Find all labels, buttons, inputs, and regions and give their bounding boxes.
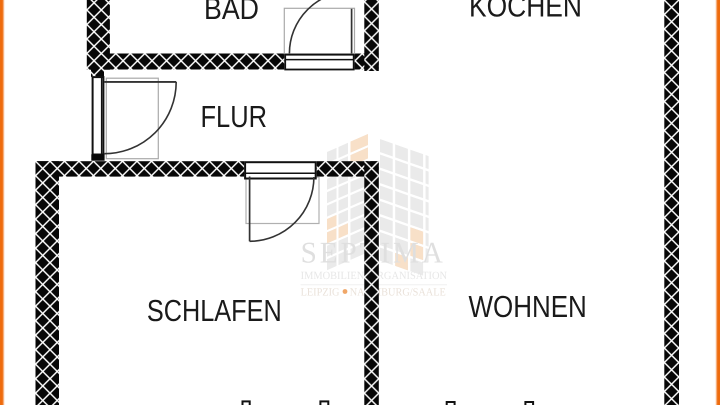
svg-text:SCHLAFEN: SCHLAFEN xyxy=(147,294,282,328)
svg-text:WOHNEN: WOHNEN xyxy=(469,290,587,324)
svg-text:FLUR: FLUR xyxy=(201,100,268,134)
svg-text:KOCHEN: KOCHEN xyxy=(469,0,582,23)
svg-text:BAD: BAD xyxy=(204,0,259,26)
